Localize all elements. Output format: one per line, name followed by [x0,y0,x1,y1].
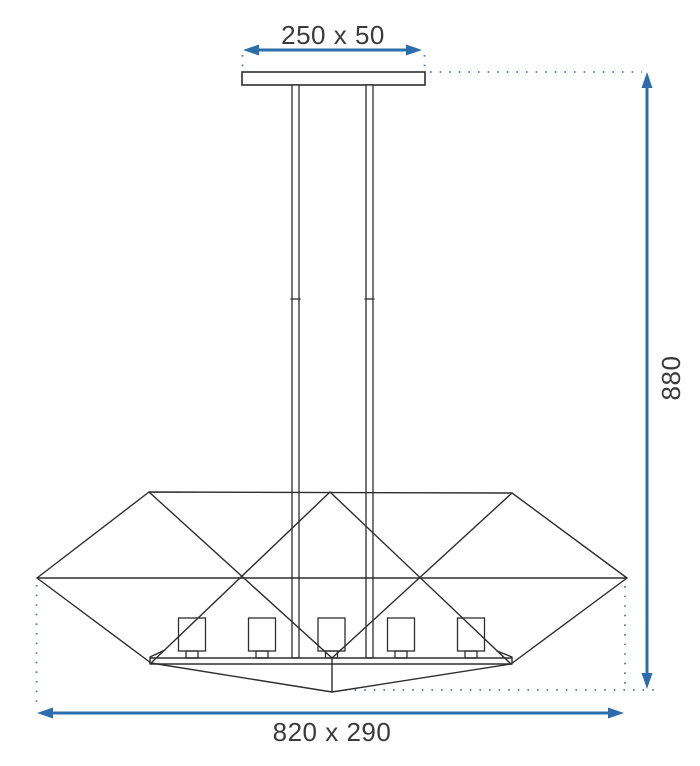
shade-dimension-label: 820 x 290 [273,717,392,747]
bulb-socket [249,618,276,658]
bulb-socket [388,618,415,658]
lamp-dimension-diagram: 250 x 50 880 820 x 290 [0,0,700,766]
bulb-sockets [179,618,485,658]
mounting-bar [150,658,512,664]
bulb-socket [458,618,485,658]
suspension-rods [291,85,375,658]
canopy-dimension: 250 x 50 [243,20,422,56]
lampshade-wireframe [37,492,627,692]
arrowhead-down-icon [642,673,653,689]
ceiling-canopy-plate [242,72,425,85]
suspension-rod-right [366,85,373,658]
bulb-socket [318,618,345,658]
canopy-dimension-label: 250 x 50 [281,20,385,50]
arrowhead-left-icon [37,708,53,719]
shade-dimension: 820 x 290 [37,708,624,748]
height-dimension: 880 [642,72,687,689]
suspension-rod-left [292,85,299,658]
mounting-bar-endcap-right [497,651,512,657]
height-dimension-label: 880 [656,356,686,401]
arrowhead-up-icon [642,72,653,88]
arrowhead-right-icon [406,45,422,56]
arrowhead-right-icon [608,708,624,719]
extension-lines [37,55,659,706]
drawing-canvas: 250 x 50 880 820 x 290 [0,0,700,766]
arrowhead-left-icon [243,45,259,56]
